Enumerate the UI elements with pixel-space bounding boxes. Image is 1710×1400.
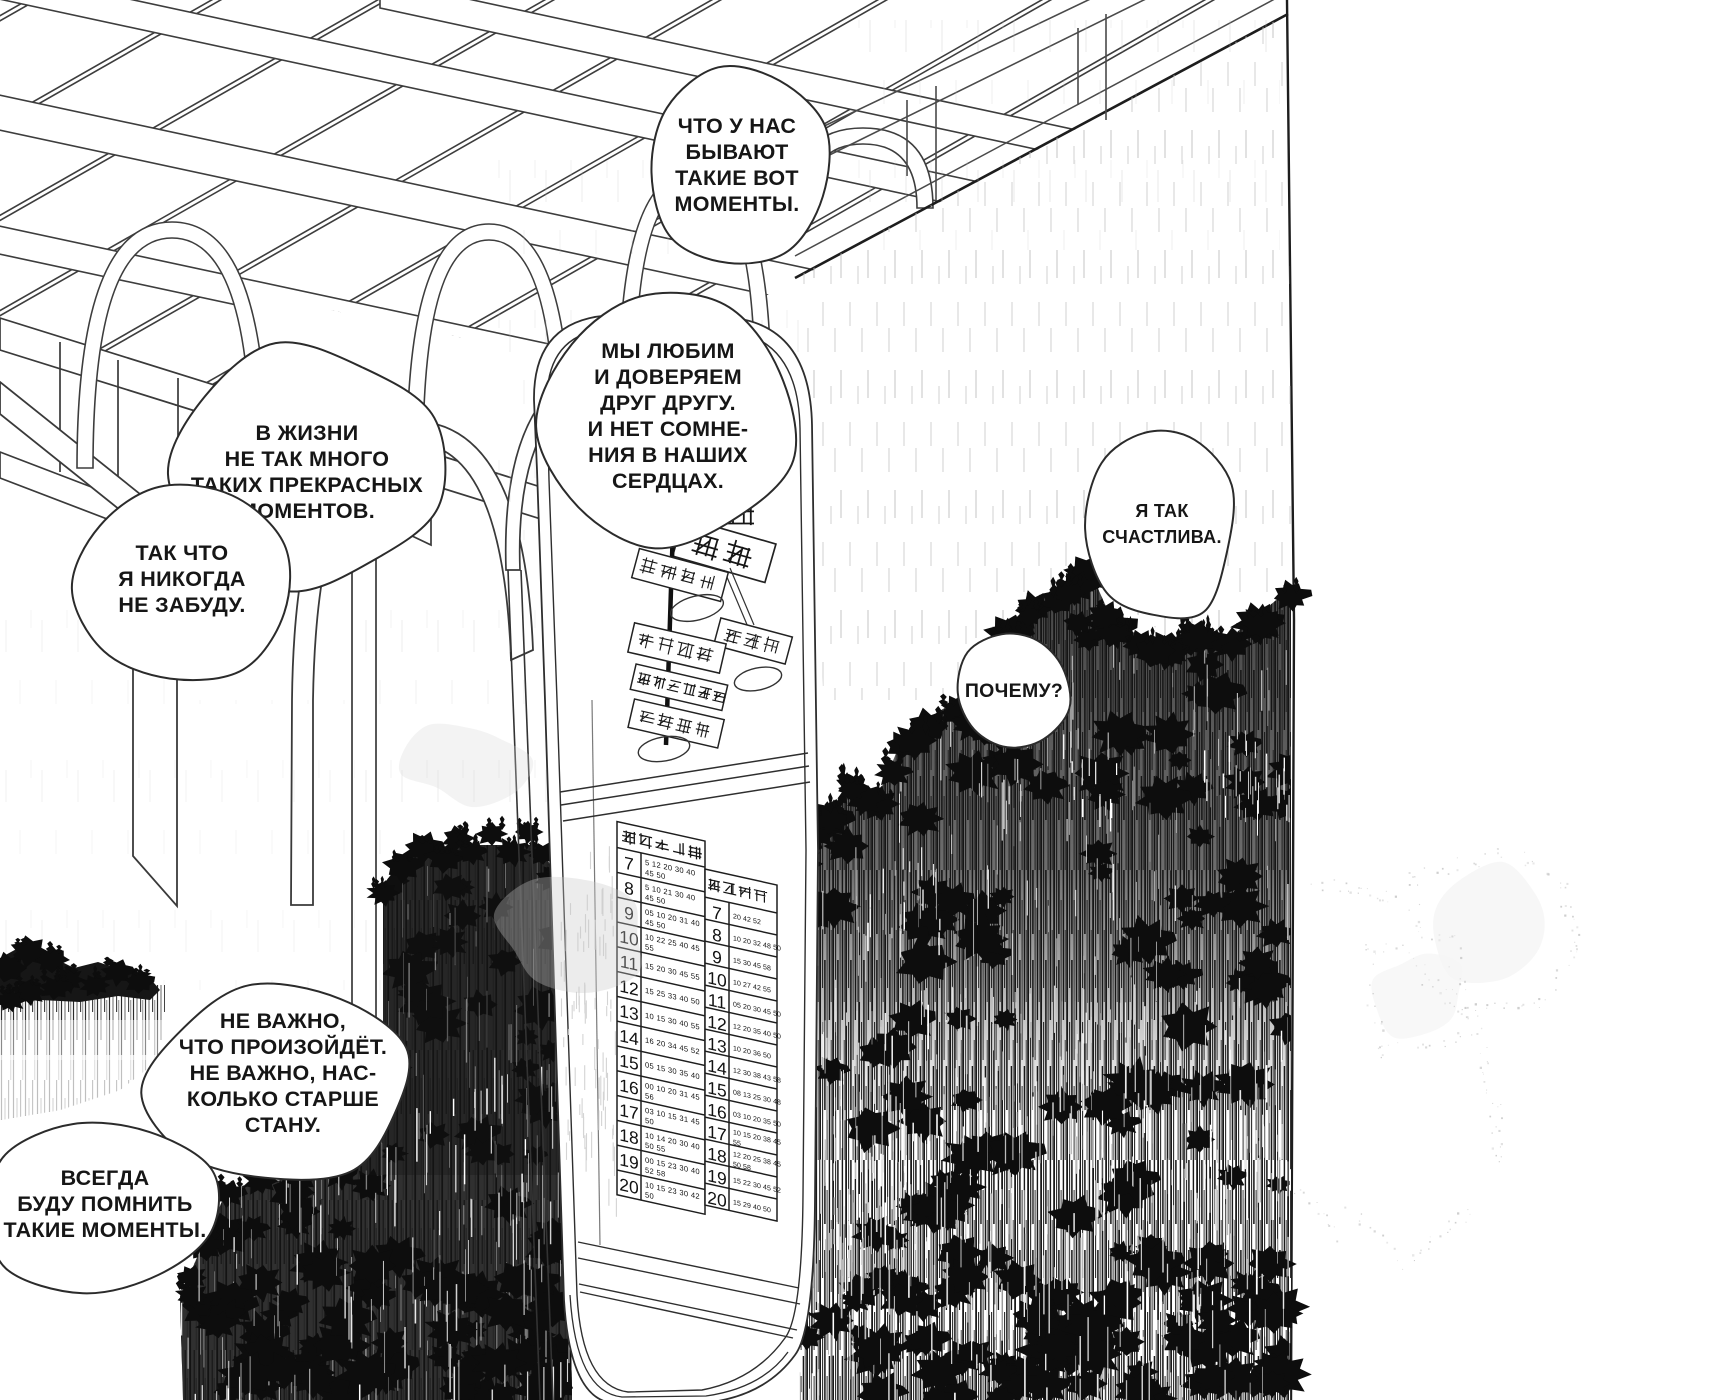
svg-text:СЕРДЦАХ.: СЕРДЦАХ.: [612, 469, 724, 493]
svg-text:9: 9: [712, 946, 722, 968]
svg-text:БУДУ ПОМНИТЬ: БУДУ ПОМНИТЬ: [17, 1192, 192, 1216]
svg-text:СТАНУ.: СТАНУ.: [245, 1113, 321, 1137]
svg-text:Я НИКОГДА: Я НИКОГДА: [118, 567, 245, 591]
svg-text:7: 7: [624, 853, 634, 875]
svg-text:ПОЧЕМУ?: ПОЧЕМУ?: [965, 680, 1063, 702]
svg-text:ТАКИЕ ВОТ: ТАКИЕ ВОТ: [675, 166, 799, 190]
svg-text:И ДОВЕРЯЕМ: И ДОВЕРЯЕМ: [594, 365, 742, 389]
svg-text:ДРУГ ДРУГУ.: ДРУГ ДРУГУ.: [600, 391, 736, 415]
svg-text:БЫВАЮТ: БЫВАЮТ: [685, 140, 788, 164]
svg-text:ВСЕГДА: ВСЕГДА: [61, 1166, 150, 1190]
svg-text:8: 8: [712, 924, 722, 946]
svg-text:КОЛЬКО СТАРШЕ: КОЛЬКО СТАРШЕ: [187, 1087, 379, 1111]
svg-text:МЫ ЛЮБИМ: МЫ ЛЮБИМ: [601, 339, 734, 363]
svg-text:ТАК ЧТО: ТАК ЧТО: [136, 541, 229, 565]
svg-text:НИЯ В НАШИХ: НИЯ В НАШИХ: [588, 443, 748, 467]
svg-text:7: 7: [712, 902, 722, 924]
svg-text:ЧТО У НАС: ЧТО У НАС: [678, 114, 797, 138]
svg-text:НЕ ВАЖНО,: НЕ ВАЖНО,: [220, 1009, 346, 1033]
svg-text:МОМЕНТЫ.: МОМЕНТЫ.: [675, 192, 800, 216]
svg-text:ТАКИЕ МОМЕНТЫ.: ТАКИЕ МОМЕНТЫ.: [4, 1218, 207, 1242]
svg-text:И НЕТ СОМНЕ-: И НЕТ СОМНЕ-: [588, 417, 749, 441]
svg-text:НЕ ЗАБУДУ.: НЕ ЗАБУДУ.: [118, 593, 245, 617]
svg-text:НЕ ВАЖНО, НАС-: НЕ ВАЖНО, НАС-: [190, 1061, 377, 1085]
svg-text:СЧАСТЛИВА.: СЧАСТЛИВА.: [1102, 527, 1222, 547]
svg-text:Я ТАК: Я ТАК: [1135, 501, 1189, 521]
svg-text:11: 11: [708, 989, 726, 1013]
svg-text:НЕ ТАК МНОГО: НЕ ТАК МНОГО: [225, 447, 390, 471]
svg-text:ЧТО ПРОИЗОЙДЁТ.: ЧТО ПРОИЗОЙДЁТ.: [179, 1034, 387, 1059]
svg-text:В ЖИЗНИ: В ЖИЗНИ: [256, 421, 359, 445]
